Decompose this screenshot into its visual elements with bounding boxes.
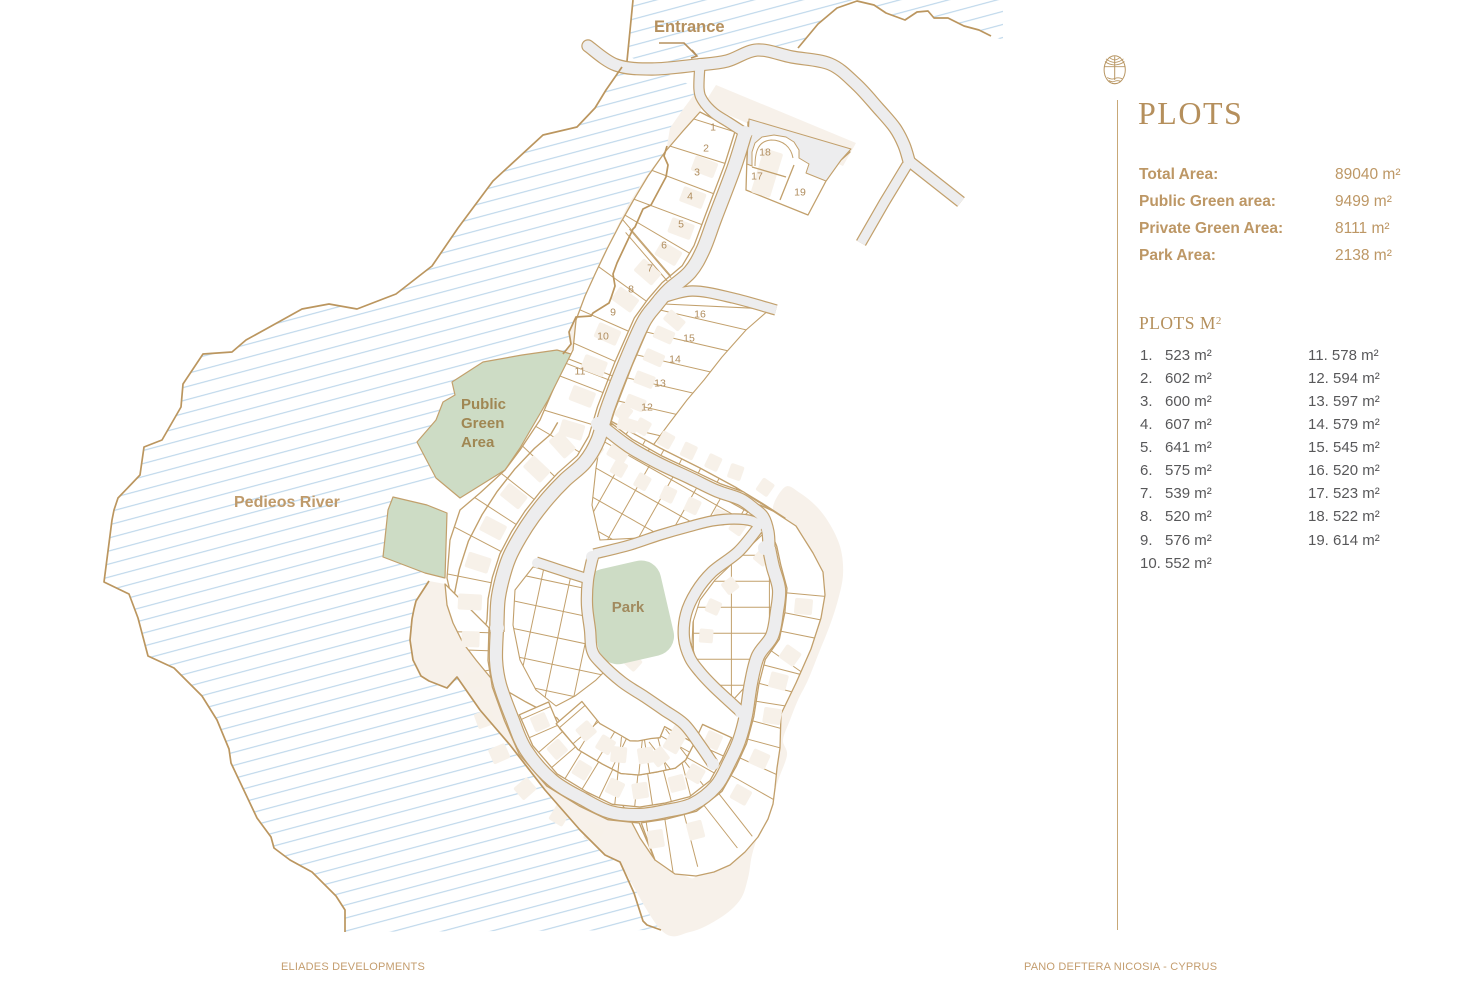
- svg-text:13: 13: [654, 378, 666, 390]
- svg-text:6: 6: [661, 240, 667, 252]
- svg-text:9: 9: [610, 307, 616, 319]
- svg-text:Public: Public: [461, 396, 506, 413]
- svg-text:2: 2: [703, 143, 709, 155]
- svg-text:Pedieos River: Pedieos River: [234, 494, 340, 511]
- svg-text:15: 15: [683, 333, 695, 345]
- svg-text:3: 3: [694, 167, 700, 179]
- svg-text:1: 1: [710, 122, 716, 134]
- svg-text:4: 4: [687, 191, 693, 203]
- svg-text:16: 16: [694, 309, 706, 321]
- svg-text:11: 11: [575, 366, 586, 378]
- svg-text:Entrance: Entrance: [654, 18, 725, 36]
- svg-text:5: 5: [678, 219, 684, 231]
- svg-text:Park: Park: [612, 599, 645, 616]
- svg-text:18: 18: [759, 147, 771, 159]
- svg-text:17: 17: [751, 171, 763, 183]
- svg-text:14: 14: [669, 354, 681, 366]
- svg-text:Area: Area: [461, 434, 495, 451]
- svg-text:12: 12: [641, 402, 653, 414]
- svg-text:19: 19: [794, 187, 806, 199]
- svg-text:7: 7: [647, 263, 653, 275]
- svg-text:8: 8: [628, 284, 634, 296]
- svg-text:Green: Green: [461, 415, 504, 432]
- svg-text:10: 10: [597, 331, 609, 343]
